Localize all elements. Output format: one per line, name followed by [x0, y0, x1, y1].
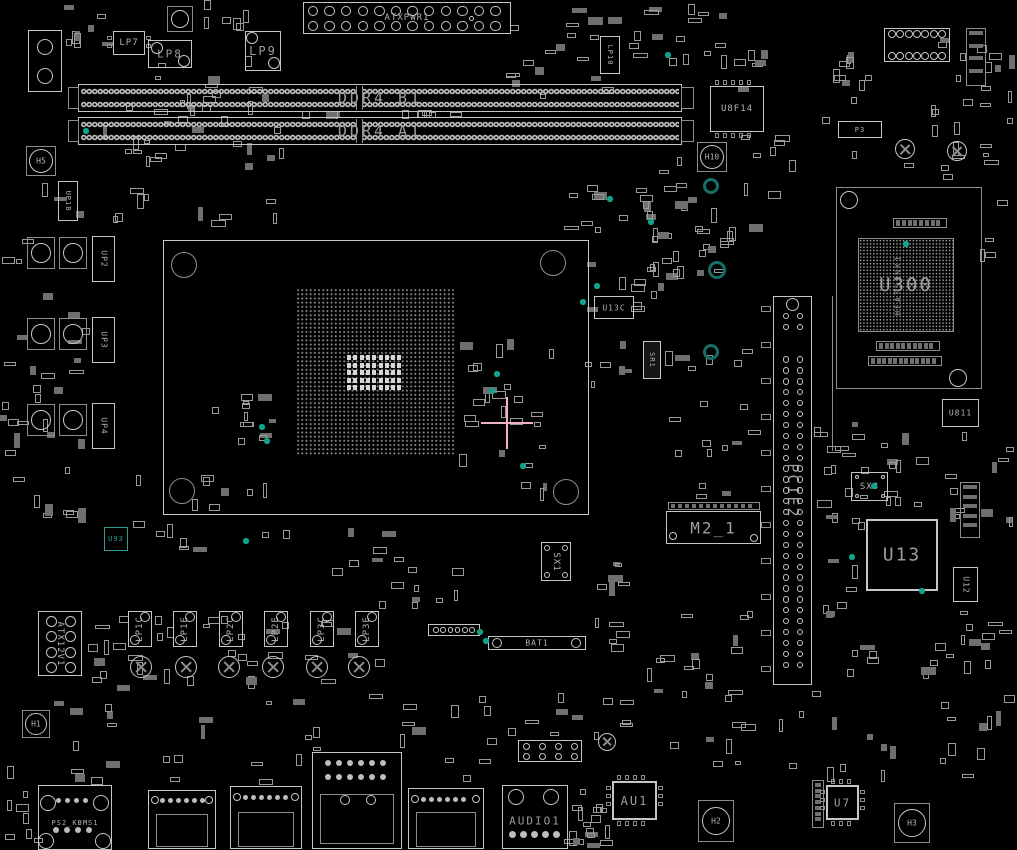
atx12v1-pin: [65, 662, 76, 673]
cpu-socket-center-pad: [353, 355, 357, 360]
smd-part: [484, 706, 491, 716]
smd-part: [611, 644, 624, 651]
lan-connector-pad: [340, 795, 350, 805]
smd-part: [768, 191, 781, 199]
pcie2-pin: [783, 356, 789, 362]
header-pin: [571, 743, 578, 750]
pcie2-pin: [797, 455, 803, 461]
smd-part: [1007, 118, 1013, 125]
strip-pad: [902, 220, 906, 226]
pad-circle-ring: [31, 243, 51, 263]
au1-pin: [617, 775, 621, 780]
strip-pad: [713, 504, 717, 508]
component-label: U8F14: [721, 104, 753, 114]
smd-part: [41, 373, 55, 378]
smd-part: [348, 528, 354, 537]
smd-part: [369, 694, 383, 699]
smd-part: [379, 601, 386, 609]
smd-part: [605, 825, 610, 840]
strip-pad: [919, 220, 923, 226]
smd-part: [961, 635, 966, 645]
smd-part: [652, 34, 663, 40]
smd-part: [633, 53, 647, 58]
lan-connector-pin: [347, 774, 353, 780]
usb-connector-1-inner: [156, 814, 208, 847]
ddr4-b1-latch-right: [681, 87, 694, 109]
usb-connector-2-pin: [275, 795, 280, 800]
smd-part: [155, 616, 162, 625]
smd-part: [479, 696, 486, 703]
strip-pad: [815, 783, 821, 787]
smd-part: [890, 746, 896, 759]
smd-part: [722, 491, 731, 496]
cpu-socket-center-pad: [397, 370, 401, 375]
pcie2-pin: [797, 564, 803, 570]
smd-part: [725, 695, 731, 703]
pad-circle-ring: [31, 410, 51, 430]
smd-part: [852, 518, 860, 524]
strip-pad: [925, 220, 929, 226]
header-pin: [539, 753, 546, 760]
smd-part: [747, 611, 753, 618]
smd-part: [985, 252, 995, 258]
strip-pad: [931, 220, 935, 226]
pcie2[interactable]: PCIE2: [773, 296, 812, 685]
u7-pin: [860, 790, 865, 794]
smd-part: [914, 502, 922, 506]
smd-part: [578, 807, 583, 821]
smd-part: [204, 17, 209, 29]
smd-part: [267, 155, 275, 162]
via-dot: [494, 371, 499, 376]
header-pin: [555, 743, 562, 750]
smd-part: [33, 385, 41, 393]
smd-part: [445, 758, 454, 763]
smd-part: [42, 183, 47, 196]
smd-part: [69, 370, 83, 375]
smd-part: [852, 151, 857, 159]
au1-pin: [625, 821, 629, 826]
smd-part: [636, 188, 647, 194]
lp10[interactable]: LP10: [600, 36, 620, 74]
pcie2-pin: [797, 465, 803, 471]
up4[interactable]: UP4: [92, 403, 115, 449]
component-label: LP9: [249, 44, 277, 58]
u7[interactable]: U7: [826, 785, 859, 820]
u811[interactable]: U811: [942, 399, 979, 427]
smd-part: [133, 521, 145, 528]
smd-part: [558, 693, 563, 703]
lan-connector-pin: [336, 760, 342, 766]
smd-part: [30, 366, 36, 375]
smd-part: [506, 73, 519, 77]
smd-part: [981, 643, 990, 649]
pcie2-side-pad: [761, 630, 771, 636]
u8f14-pin: [731, 80, 735, 85]
cpu-socket-center-pad: [347, 385, 351, 390]
smd-part: [935, 643, 946, 651]
smd-part: [670, 742, 679, 748]
cpu-socket-center-pad: [385, 370, 389, 375]
atxpwr1-pin: [407, 21, 417, 31]
smd-part: [706, 674, 713, 681]
header-pin: [571, 753, 578, 760]
smd-part: [65, 467, 71, 474]
au1-pin: [633, 775, 637, 780]
atx12v1-pin: [65, 631, 76, 642]
sr1[interactable]: SR1: [643, 341, 661, 379]
via-dot: [489, 388, 494, 393]
smd-part: [715, 43, 726, 48]
smd-part: [88, 644, 98, 651]
smd-part: [156, 531, 165, 538]
u13c[interactable]: U13C: [594, 296, 634, 319]
smd-part: [867, 657, 879, 664]
atxpwr1-pin: [324, 6, 334, 16]
smd-part: [23, 813, 29, 824]
smd-part: [732, 441, 742, 445]
usb-connector-1-pad: [205, 796, 213, 804]
ddr4-a1-pins-top: [81, 119, 679, 130]
via-dot: [665, 52, 670, 57]
smd-part: [247, 661, 258, 666]
pcie2-pin: [783, 378, 789, 384]
u7-pin: [820, 798, 825, 802]
lp1c-pad: [130, 635, 140, 645]
smd-part: [665, 351, 672, 366]
usb-connector-3-pin: [461, 797, 466, 802]
lp1c-pad: [140, 612, 150, 622]
smd-part: [731, 647, 743, 654]
component-label: UP4: [99, 417, 108, 434]
smd-part: [779, 719, 783, 732]
smd-part: [676, 183, 687, 188]
smd-part: [125, 149, 132, 154]
pcie2-pin: [797, 476, 803, 482]
smd-part: [587, 185, 598, 191]
smd-part: [688, 18, 703, 22]
strip-pad: [748, 504, 752, 508]
pcie2-pin: [797, 378, 803, 384]
smd-part: [652, 236, 659, 243]
u7-pin: [839, 821, 843, 826]
u7-pin: [839, 779, 843, 784]
component-label: M2_1: [690, 518, 737, 537]
via-dot: [83, 128, 88, 133]
smd-part: [211, 220, 226, 227]
strip-pad: [896, 220, 900, 226]
smd-part: [852, 434, 865, 440]
usb-connector-2-inner: [238, 812, 294, 847]
atxpwr1-pin: [324, 21, 334, 31]
ps2-kbms1-pin: [56, 798, 61, 803]
lp7[interactable]: LP7: [113, 31, 145, 55]
strip-pad: [918, 343, 922, 349]
smd-part: [662, 258, 673, 264]
ddr4-b1-pins-top: [81, 86, 679, 97]
up1b[interactable]: UP1B: [58, 181, 78, 221]
smd-part: [596, 804, 604, 813]
smd-part: [556, 44, 565, 51]
u8f14[interactable]: U8F14: [710, 86, 764, 132]
via-ring: [703, 344, 719, 360]
smd-part: [414, 585, 418, 592]
smd-part: [43, 293, 53, 300]
strip-pad: [913, 343, 917, 349]
smd-part: [748, 430, 761, 435]
smd-part: [675, 201, 688, 209]
p3[interactable]: P3: [838, 121, 882, 138]
pcie2-pin: [783, 455, 789, 461]
u93[interactable]: U93: [104, 527, 128, 551]
smd-part: [199, 717, 213, 723]
smd-part: [657, 232, 670, 239]
smd-part: [266, 701, 272, 705]
smd-part: [391, 582, 404, 589]
smd-part: [436, 598, 443, 603]
smd-part: [722, 445, 729, 451]
m2-1[interactable]: M2_1: [666, 511, 761, 544]
pcie2-pin: [783, 574, 789, 580]
cpu-socket-center-pad: [360, 378, 364, 383]
smd-part: [313, 727, 320, 737]
smd-part: [664, 186, 676, 192]
smd-part: [573, 838, 579, 845]
smd-part: [591, 815, 601, 823]
smd-part: [510, 25, 519, 31]
cpu-socket-corner-hole: [540, 250, 566, 276]
strip: [960, 482, 980, 538]
via-dot: [849, 554, 854, 559]
pad-circle-ring: [63, 324, 83, 344]
smd-part: [54, 387, 63, 394]
smd-part: [983, 153, 989, 157]
via-ring: [703, 178, 719, 194]
smd-part: [721, 55, 727, 69]
ddr4-a1-key-notch: [356, 119, 363, 143]
smd-part: [770, 147, 776, 155]
cpu-socket-center-pad: [366, 370, 370, 375]
smd-part: [107, 711, 113, 719]
screw-pad: [218, 656, 240, 678]
smd-part: [963, 99, 973, 106]
smd-part: [4, 362, 16, 367]
smd-part: [66, 39, 72, 45]
smd-part: [63, 510, 74, 515]
pad-circle-ring: [31, 324, 51, 344]
smd-part: [564, 226, 579, 230]
u8f14-pin: [739, 80, 743, 85]
smd-part: [236, 23, 244, 30]
u13[interactable]: U13: [866, 519, 938, 591]
smd-part: [600, 362, 611, 368]
smd-part: [950, 508, 957, 523]
strip-pad: [969, 56, 983, 60]
lp9-pad: [246, 32, 258, 44]
pcie2-pin: [797, 662, 803, 668]
strip-pad: [671, 504, 675, 508]
smd-part: [75, 774, 85, 782]
smd-part: [946, 654, 954, 658]
smd-part: [577, 57, 589, 61]
smd-part: [619, 215, 627, 221]
smd-part: [998, 458, 1009, 462]
smd-part: [633, 302, 642, 310]
smd-part: [222, 17, 231, 24]
smd-part: [832, 717, 837, 730]
u7-pin: [860, 806, 865, 810]
smd-part: [130, 188, 144, 193]
header-pin: [523, 753, 530, 760]
smd-part: [954, 122, 960, 134]
smd-part: [609, 582, 616, 597]
component-label: U93: [108, 535, 124, 543]
u12[interactable]: U12: [953, 567, 978, 602]
smd-part: [940, 758, 946, 765]
header-pin: [938, 30, 946, 38]
smd-part: [640, 195, 653, 203]
header-pin: [469, 627, 475, 633]
up3[interactable]: UP3: [92, 317, 115, 363]
m2-1-pad: [750, 534, 758, 542]
cpu-socket-center-pad: [391, 385, 395, 390]
smd-part: [16, 804, 28, 811]
header-pin: [913, 30, 921, 38]
au1[interactable]: AU1: [612, 781, 657, 820]
smd-part: [865, 75, 872, 81]
smd-part: [408, 567, 417, 574]
smd-part: [5, 450, 16, 457]
smd-part: [989, 53, 1003, 59]
audio1-pad: [543, 789, 559, 805]
strip-pad: [727, 504, 731, 508]
smd-part: [373, 547, 386, 554]
strip-pad: [741, 504, 745, 508]
via-dot: [580, 299, 585, 304]
heatsink-outline-pad: [949, 369, 967, 387]
smd-part: [688, 4, 696, 16]
component-label: U7: [834, 796, 851, 809]
smd-part: [945, 474, 957, 479]
smd-part: [835, 446, 849, 451]
pcie2-pin: [783, 553, 789, 559]
cpu-socket-center-pad: [353, 378, 357, 383]
cpu-socket-center-pad: [397, 378, 401, 383]
smd-part: [828, 559, 839, 563]
smd-part: [170, 777, 180, 782]
smd-part: [45, 504, 52, 516]
au1-pin: [625, 775, 629, 780]
smd-part: [23, 791, 28, 798]
smd-part: [682, 691, 687, 698]
smd-part: [619, 277, 626, 290]
u7-pin: [820, 790, 825, 794]
smd-part: [567, 33, 576, 38]
cpu-socket-corner-hole: [169, 478, 195, 504]
smd-part: [95, 625, 109, 629]
strip-pad: [908, 220, 912, 226]
smd-part: [683, 54, 689, 65]
smd-part: [609, 622, 624, 627]
pcie2-pin: [783, 662, 789, 668]
atxpwr1-pin: [441, 6, 451, 16]
smd-part: [198, 207, 203, 221]
smd-part: [71, 769, 84, 773]
smd-part: [620, 341, 627, 349]
smd-part: [826, 515, 837, 519]
smd-part: [463, 775, 471, 781]
cpu-socket-center-pad: [353, 370, 357, 375]
component-label: U12: [961, 576, 970, 593]
smd-part: [1006, 447, 1014, 452]
ps2-kbms1-pin: [65, 798, 70, 803]
smd-part: [956, 75, 961, 82]
usb-connector-1-pad: [151, 796, 159, 804]
strip-pad: [913, 220, 917, 226]
pcie2-pin: [797, 356, 803, 362]
via-dot: [483, 638, 488, 643]
atx12v1-pin: [65, 647, 76, 658]
smd-part: [525, 720, 539, 724]
strip-pad: [926, 358, 930, 364]
u8f14-pin: [715, 80, 719, 85]
atxpwr1-pin: [457, 6, 467, 16]
atx12v1-pin: [65, 616, 76, 627]
strip-pad: [901, 343, 905, 349]
usb-connector-2-pin: [267, 795, 272, 800]
smd-part: [789, 160, 796, 172]
strip-pad: [879, 343, 883, 349]
smd-part: [595, 618, 599, 629]
pcie2-side-pad: [761, 558, 771, 564]
smd-part: [620, 700, 633, 705]
header-pin: [913, 52, 921, 60]
smd-part: [921, 667, 936, 674]
pcie2-side-pad: [761, 666, 771, 672]
lp8-pad: [151, 42, 163, 54]
smd-part: [948, 743, 956, 756]
smd-part: [669, 417, 680, 423]
cpu-socket-center-pad: [372, 385, 376, 390]
cpu-socket-center-pad: [360, 355, 364, 360]
smd-part: [296, 754, 302, 766]
sx3-pad: [881, 494, 885, 498]
strip-pad: [734, 504, 738, 508]
smd-part: [580, 789, 587, 794]
pcie2-pin: [783, 585, 789, 591]
usb-connector-3-pin: [445, 797, 450, 802]
atxpwr1-pin: [358, 21, 368, 31]
smd-part: [726, 739, 732, 753]
strip-pad: [910, 358, 914, 364]
up2[interactable]: UP2: [92, 236, 115, 282]
u8f14-pin: [723, 133, 727, 138]
cpu-socket-center-pad: [391, 363, 395, 368]
atx12v1-pin: [46, 662, 57, 673]
u300[interactable]: U300HEATSINK1: [858, 238, 954, 332]
ps2-kbms1-pad: [40, 795, 56, 811]
ps2-kbms1-pad: [95, 833, 111, 849]
header-pin: [888, 30, 896, 38]
au1-pin: [606, 794, 611, 798]
smd-part: [600, 840, 613, 846]
smd-part: [697, 270, 704, 277]
smd-part: [566, 23, 579, 27]
au1-pin: [658, 802, 663, 806]
smd-part: [699, 250, 706, 257]
smd-part: [846, 57, 854, 69]
component-label: U13C: [602, 303, 625, 312]
